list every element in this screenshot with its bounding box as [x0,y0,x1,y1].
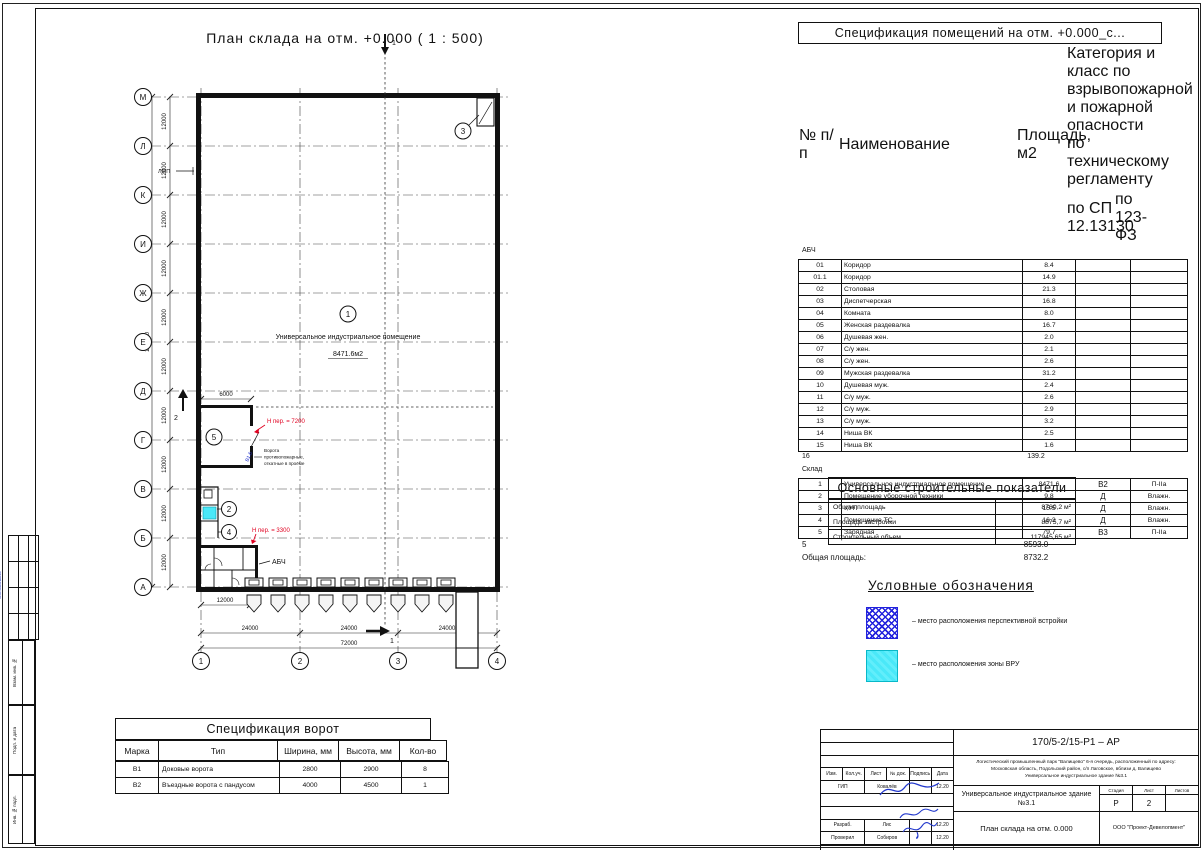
dim-24000: 24000 [341,626,358,632]
axis-I: И [140,240,146,249]
indicator-label: Площадь застройки [829,515,996,530]
gip-role: ГИП [821,781,865,794]
axis-Zh: Ж [139,289,147,298]
dim-12000: 12000 [162,112,168,129]
axis-3: 3 [396,657,401,666]
sklad-total-count: 5 [802,540,806,549]
stamp-vzam-inv: Взам. инв. № [8,640,35,705]
group-abch-label: АБЧ [798,246,1162,259]
cell-area: 8.4 [1023,260,1076,272]
project-description: Логистический промышленный парк "Валищев… [953,755,1199,786]
axis-B: Б [140,534,145,543]
table-row: 10Душевая муж.2.4 [799,380,1188,392]
dim-72000: 72000 [341,641,358,647]
room-2-marker: 2 [227,505,232,514]
table-row: 06Душевая жен.2.0 [799,332,1188,344]
indicator-value: 8875,7 м² [996,515,1076,530]
room-5-charging: 5 Н пер. = 7200 Ворота противопожарные, … [201,405,305,468]
table-row: 01.1Коридор14.9 [799,272,1188,284]
stamp-podp-label: Подп. и дата [8,706,21,774]
dim-24000: 24000 [439,626,456,632]
axis-4: 4 [495,657,500,666]
developer-role: Разраб. [821,819,865,832]
table-row: 05Женская раздевалка16.7 [799,320,1188,332]
col-category: Категория и класс по взрывопожарной и по… [1066,44,1162,190]
table-row: 14Ниша ВК2.5 [799,428,1188,440]
table-row: Строительный объем117945,65 м³ [829,530,1076,545]
col-sp: по СП 12.13130 [1066,190,1114,246]
dock-doors [245,578,455,612]
col-name: Наименование [838,44,1016,246]
fire-gate-note-l2: противопожарные, [264,455,304,460]
axis-L: Л [140,142,145,151]
table-row: 07С/у жен.2.1 [799,344,1188,356]
dim-12000: 12000 [162,406,168,423]
dim-24000: 24000 [242,626,259,632]
lmp-label: ЛМП [158,169,170,175]
table-row: Общая площадь8760,2 м² [829,500,1076,515]
room-1-main-hall: 1 Универсальное индустриальное помещение… [276,306,421,359]
grand-total: Общая площадь: 8732.2 [798,552,1162,565]
col-fz: по 123-ФЗ [1114,190,1162,246]
drawing-sheet: Согласовано Взам. инв. № Подп. и дата Ин… [0,0,1203,850]
stamp-inv-label: Инв. № подл. [8,776,21,843]
col-koluch: Кол.уч. [843,768,865,781]
dim-12000: 12000 [162,357,168,374]
col-gate-width: Ширина, мм [278,741,339,761]
table-row: В1 Доковые ворота 2800 2900 8 [116,762,449,778]
rooms-2-4-service: 2 4 [201,487,237,540]
room-1-name: Универсальное индустриальное помещение [276,334,421,341]
dim-12000: 12000 [162,259,168,276]
project-desc-line1: Логистический промышленный парк "Валищев… [954,759,1198,766]
fire-gate-note-l3: откатные в проёме [264,461,305,466]
grand-total-area: 8732.2 [1012,553,1060,562]
indicator-value: 8760,2 м² [996,500,1076,515]
dim-12000: 12000 [162,553,168,570]
section-1-bottom-label: 1 [390,638,394,645]
left-strip-mini-table [8,535,39,640]
drawing-name: План склада на отм. 0.000 [953,811,1100,845]
abch-total-area: 139.2 [1012,453,1060,460]
doc-number: 170/5-2/15-Р1 – АР [953,729,1199,756]
abch-label: АБЧ [272,559,286,566]
room-1-area: 8471.6м2 [333,351,363,358]
cell-num: 01 [799,260,842,272]
col-izm: Изм. [821,768,843,781]
abch-total-count: 16 [802,453,810,460]
gate-spec-header: Марка Тип Ширина, мм Высота, мм Кол-во [115,740,447,761]
gip-signature [878,779,942,801]
vru-zone-fill [203,507,216,519]
sheet-number: 2 [1132,794,1166,812]
project-desc-line2: Московская область, Подольский район, с/… [954,766,1198,773]
grand-total-label: Общая площадь: [802,553,866,562]
project-desc-line3: Универсальное индустриальное здание №3.1 [954,773,1198,780]
table-row: 15Ниша ВК1.6 [799,440,1188,452]
stamp-vzam-label: Взам. инв. № [8,641,21,704]
table-row: В2 Въездные ворота с пандусом 4000 4500 … [116,778,449,794]
col-area: Площадь, м2 [1016,44,1066,246]
grid-lines [151,88,508,652]
legend-hatch-swatch [866,607,898,639]
col-num: № п/п [798,44,838,246]
gate-spec-rows: В1 Доковые ворота 2800 2900 8 В2 Въездны… [115,761,449,794]
stamp-podp-data: Подп. и дата [8,705,35,775]
stage-value: Р [1099,794,1133,812]
dim-12000: 12000 [162,210,168,227]
indicator-label: Строительный объем [829,530,996,545]
room-5-marker: 5 [212,433,217,442]
axis-2: 2 [298,657,303,666]
axis-K: К [141,191,146,200]
room-3-marker: 3 [461,127,466,136]
fire-gate-note-l1: Ворота [264,448,280,453]
legend-item-vru: – место расположения зоны ВРУ [912,661,1019,668]
table-row: 02Столовая21.3 [799,284,1188,296]
indicators-table: Общая площадь8760,2 м² Площадь застройки… [828,499,1076,545]
axis-A: А [140,583,146,592]
table-row: 01Коридор8.4 [799,260,1188,272]
sheets-total [1165,794,1199,812]
room-1-marker: 1 [346,310,351,319]
cell-name: Коридор [842,260,1023,272]
section-1-top-label: 1 [392,40,396,47]
floor-plan: 12000 12000 12000 12000 12000 12000 1200… [120,20,545,685]
object-name: Универсальное индустриальное здание №3.1 [953,785,1100,812]
room-spec-title: Спецификация помещений на отм. +0.000_с.… [798,22,1162,44]
gate-spec-title: Спецификация ворот [115,718,431,740]
checker-signature [900,818,940,840]
legend-item-perspective: – место расположения перспективной встро… [912,618,1067,625]
legend-title: Условные обозначения [868,578,1034,593]
col-gate-type: Тип [159,741,278,761]
building-walls [196,93,500,592]
table-row: Площадь застройки8875,7 м² [829,515,1076,530]
indicator-label: Общая площадь [829,500,996,515]
checker-role: Проверил [821,832,865,845]
note-h-per-3300: Н пер. = 3300 [252,528,290,534]
note-h-per-7200: Н пер. = 7200 [267,419,305,425]
table-row: 12С/у муж.2.9 [799,404,1188,416]
axis-D: Д [140,387,146,396]
dimension-chains [149,94,500,651]
stamp-inv-podl: Инв. № подл. [8,775,35,844]
indicators-title: Основные строительные показатели [828,477,1076,499]
room-4-marker: 4 [227,528,232,537]
dim-6000: 6000 [219,392,233,398]
room-spec-header: № п/п Наименование Площадь, м2 Категория… [798,44,1162,246]
indicator-value: 117945,65 м³ [996,530,1076,545]
dim-12000: 12000 [162,455,168,472]
axis-M: М [140,93,147,102]
axis-1: 1 [199,657,204,666]
axis-E: Е [140,338,145,347]
axis-G: Г [141,436,146,445]
axis-V: В [140,485,145,494]
dim-12000: 12000 [162,504,168,521]
table-row: 11С/у муж.2.6 [799,392,1188,404]
build-indicators-block: Основные строительные показатели Общая п… [828,477,1076,545]
table-row: 04Комната8.0 [799,308,1188,320]
room-3-uup: 3 [455,98,494,139]
col-gate-mark: Марка [116,741,159,761]
table-row: 08С/у жен.2.6 [799,356,1188,368]
company-name: ООО "Проект-Девелопмент" [1099,811,1199,845]
dimension-labels: 12000 12000 12000 12000 12000 12000 1200… [145,112,456,647]
room-spec-abch-rows: 01Коридор8.4 01.1Коридор14.9 02Столовая2… [798,259,1188,452]
section-2-label: 2 [174,415,178,422]
dim-12000-abch: 12000 [217,598,234,604]
lmp-mark: ЛМП [158,167,194,175]
group-abch-total: 16 139.2 [798,452,1162,465]
legend-cyan-swatch [866,650,898,682]
dim-12000: 12000 [162,308,168,325]
col-gate-qty: Кол-во [400,741,447,761]
table-row: 09Мужская раздевалка31.2 [799,368,1188,380]
col-gate-height: Высота, мм [339,741,400,761]
gate-spec-block: Спецификация ворот Марка Тип Ширина, мм … [115,718,431,794]
entrance-ramp [456,592,478,668]
table-row: 03Диспетчерская16.8 [799,296,1188,308]
table-row: 13С/у муж.3.2 [799,416,1188,428]
